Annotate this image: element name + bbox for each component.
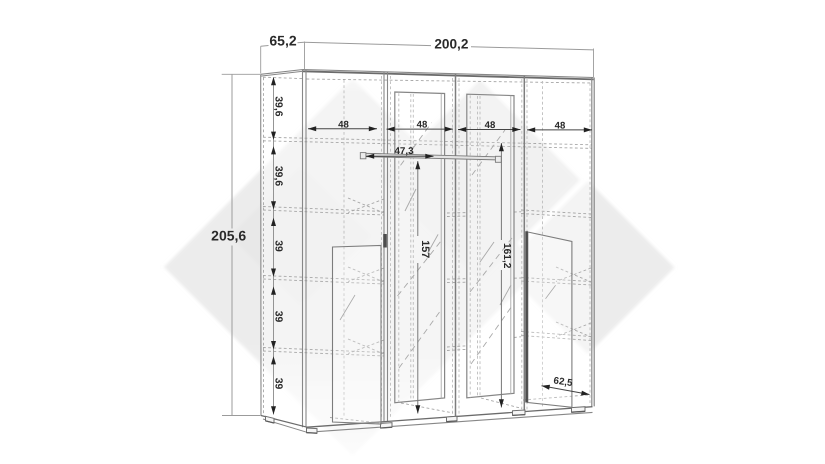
svg-text:48: 48 — [485, 120, 496, 131]
svg-text:157: 157 — [419, 240, 431, 258]
svg-text:161,2: 161,2 — [501, 243, 512, 269]
svg-text:39,6: 39,6 — [273, 96, 284, 116]
svg-text:205,6: 205,6 — [211, 228, 246, 244]
svg-text:39: 39 — [273, 311, 284, 323]
svg-text:39: 39 — [273, 240, 284, 252]
svg-text:39: 39 — [273, 378, 284, 390]
svg-text:48: 48 — [555, 121, 566, 132]
svg-text:48: 48 — [338, 119, 349, 130]
svg-text:48: 48 — [417, 120, 428, 131]
svg-text:47,3: 47,3 — [394, 146, 414, 157]
svg-text:39,6: 39,6 — [273, 166, 284, 186]
svg-text:65,2: 65,2 — [269, 33, 296, 49]
svg-text:200,2: 200,2 — [434, 36, 468, 51]
